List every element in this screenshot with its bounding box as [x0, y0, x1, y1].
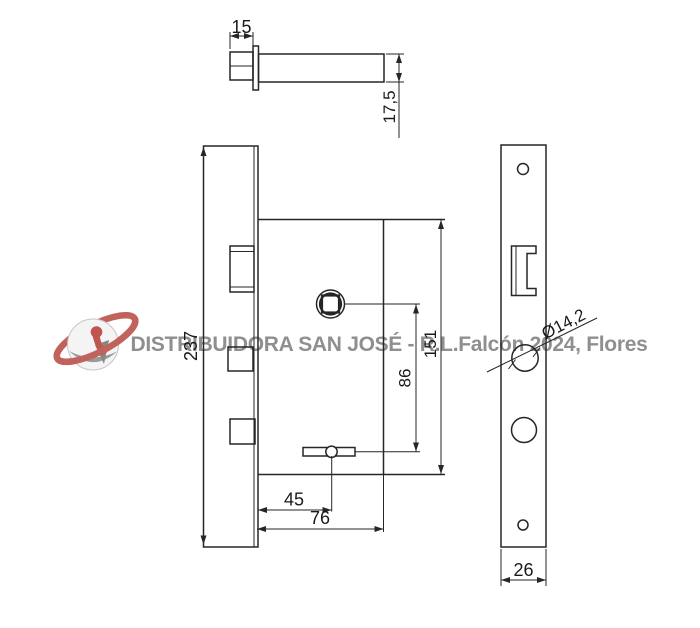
planet-keyhole-logo-icon — [51, 306, 141, 370]
bolt-flange — [253, 46, 259, 90]
dim-label-case-height: 151 — [421, 330, 440, 358]
dim-label-faceplate-height: 237 — [181, 331, 201, 361]
lock-technical-drawing: DISTRIBUIDORA SAN JOSÉ - R.L.Falcón 2024… — [0, 0, 700, 628]
dim-label-bolt-head-width: 15 — [231, 17, 251, 37]
latch-cutout — [512, 246, 537, 296]
screw-hole-top — [518, 164, 529, 175]
dim-label-cam-offset: 45 — [284, 490, 304, 510]
latch-bolt — [230, 246, 254, 292]
lower-cutout — [230, 419, 255, 444]
lock-technical-drawing-page: DISTRIBUIDORA SAN JOSÉ - R.L.Falcón 2024… — [0, 0, 700, 628]
dim-label-spindle-to-cam: 86 — [396, 369, 415, 388]
dim-17-extension-lines — [386, 54, 404, 82]
dim-label-case-depth: 76 — [310, 508, 330, 528]
dim-label-bolt-shaft-diameter: 17,5 — [380, 90, 399, 123]
bolt-shaft — [259, 54, 385, 82]
screw-hole-bottom — [518, 520, 528, 530]
bolt-side-view: 15 17,5 — [230, 17, 404, 138]
spindle-square — [322, 296, 339, 313]
key-cam-hub — [326, 446, 337, 457]
dim-label-plate-width: 26 — [513, 560, 533, 580]
spindle-hole-inner — [320, 294, 341, 315]
latch-bolt-chamfer-lines — [230, 252, 254, 288]
faceplate-front-view: Ø14,2 26 — [487, 145, 597, 586]
deadbolt-hole — [512, 418, 537, 443]
watermark-text: DISTRIBUIDORA SAN JOSÉ - R.L.Falcón 2024… — [131, 333, 648, 356]
